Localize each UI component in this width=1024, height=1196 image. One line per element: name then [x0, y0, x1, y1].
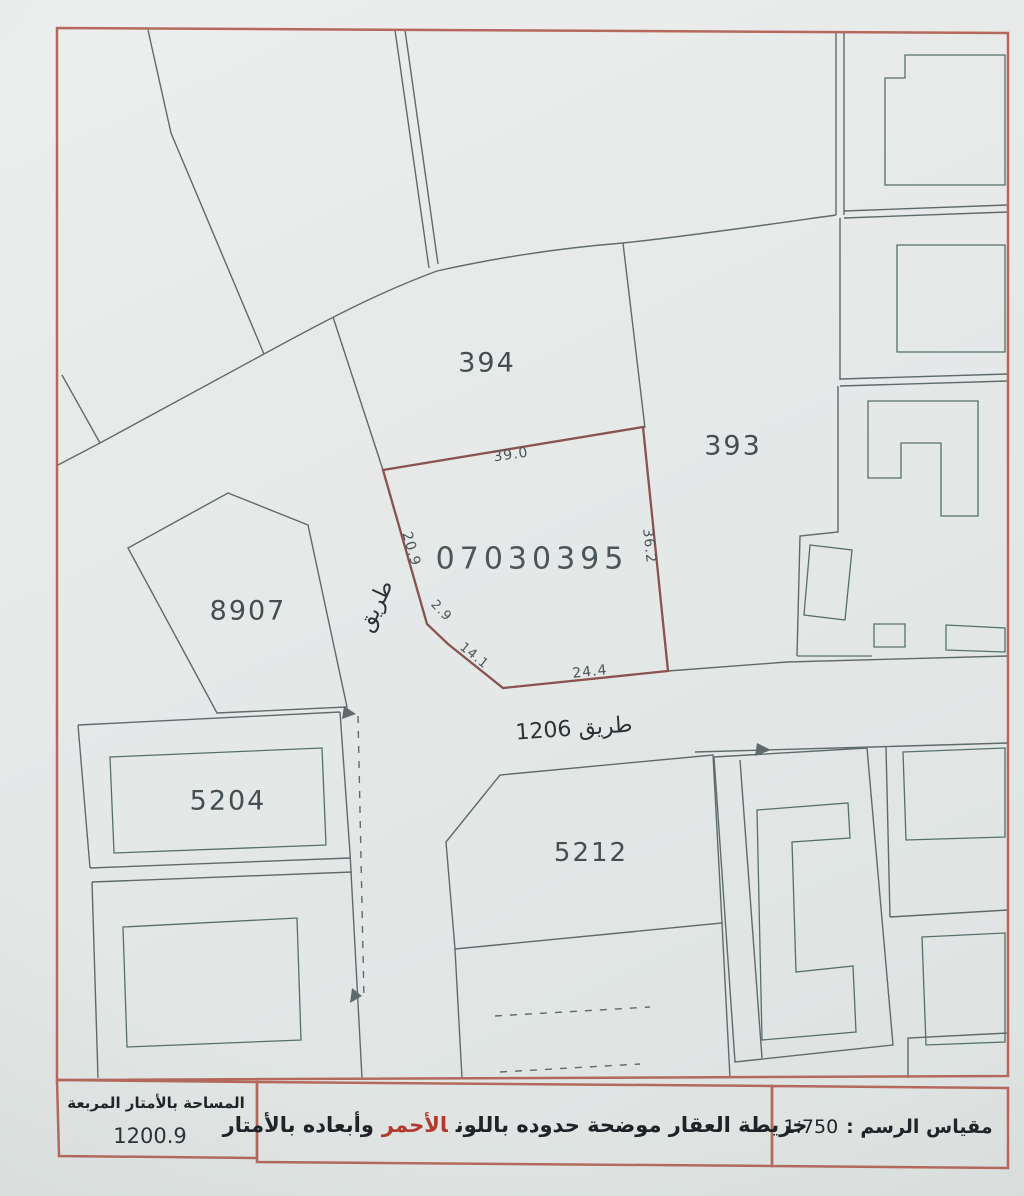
dashed-survey-lines: [358, 716, 650, 1072]
subject-plot-number: 07030395: [436, 542, 629, 577]
survey-map-page: 394 393 8907 5204 5212 07030395 طريق طري…: [0, 0, 1024, 1196]
map-drawing: [0, 0, 1024, 1196]
area-label: المساحة بالأمتار المربعة: [67, 1094, 245, 1112]
map-frame: [57, 28, 1008, 1168]
parcel-label-394: 394: [458, 348, 516, 379]
map-title-after: وأبعاده بالأمتار: [223, 1113, 374, 1137]
parcel-label-5212: 5212: [554, 838, 628, 868]
parcel-label-393: 393: [704, 431, 762, 462]
area-value: 1200.9: [113, 1124, 186, 1148]
parcel-label-8907: 8907: [210, 596, 287, 627]
map-title: خريطة العقار موضحة حدوده باللونالأحمروأب…: [219, 1113, 812, 1137]
map-title-before: خريطة العقار موضحة حدوده باللون: [456, 1113, 808, 1137]
map-title-red-word: الأحمر: [382, 1113, 448, 1137]
scale-label: مقياس الرسم :: [846, 1116, 992, 1138]
parcel-label-5204: 5204: [190, 786, 267, 817]
scale-text: مقياس الرسم :1:750: [779, 1116, 996, 1138]
scale-value: 1:750: [783, 1116, 838, 1138]
